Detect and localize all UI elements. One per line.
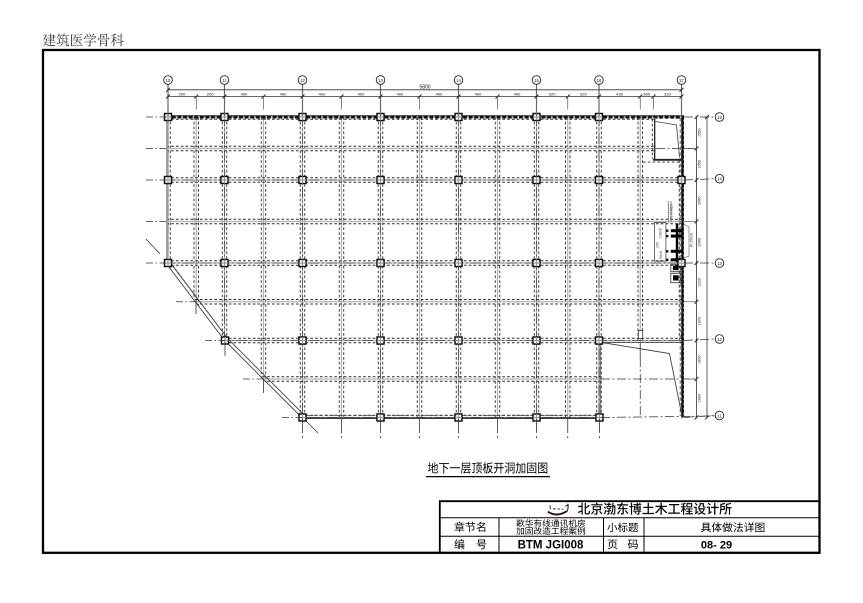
svg-text:15: 15	[717, 115, 722, 120]
svg-text:320: 320	[549, 91, 556, 96]
svg-text:400: 400	[436, 91, 443, 96]
svg-text:11: 11	[717, 414, 722, 419]
svg-text:1900: 1900	[698, 356, 702, 364]
svg-text:400: 400	[514, 91, 521, 96]
svg-text:15: 15	[534, 78, 539, 83]
svg-text:13: 13	[717, 261, 722, 266]
svg-text:320: 320	[664, 91, 671, 96]
svg-text:PL250x8: PL250x8	[690, 233, 694, 247]
svg-text:12: 12	[717, 337, 722, 342]
svg-text:L50x5: L50x5	[659, 228, 663, 238]
svg-text:200: 200	[207, 91, 214, 96]
svg-text:600: 600	[644, 91, 651, 96]
svg-text:400: 400	[319, 91, 326, 96]
svg-text:320: 320	[580, 91, 587, 96]
svg-text:13: 13	[378, 78, 383, 83]
svg-text:2060: 2060	[698, 197, 702, 205]
svg-text:14: 14	[456, 78, 461, 83]
svg-text:1920: 1920	[698, 278, 702, 286]
svg-text:250: 250	[656, 242, 660, 248]
svg-text:400: 400	[280, 91, 287, 96]
svg-text:14: 14	[717, 177, 722, 182]
svg-text:10: 10	[166, 78, 171, 83]
svg-text:12: 12	[300, 78, 305, 83]
svg-text:08- 29: 08- 29	[701, 540, 732, 552]
svg-text:1550: 1550	[698, 160, 702, 168]
svg-text:17: 17	[679, 78, 684, 83]
svg-text:2060: 2060	[698, 238, 702, 246]
svg-text:11: 11	[222, 78, 227, 83]
svg-text:200: 200	[179, 91, 186, 96]
svg-text:400: 400	[475, 91, 482, 96]
svg-text:400: 400	[241, 91, 248, 96]
svg-text:L50x5: L50x5	[659, 251, 663, 261]
svg-text:BTM JGI008: BTM JGI008	[518, 539, 584, 551]
svg-text:400: 400	[397, 91, 404, 96]
svg-text:1900: 1900	[698, 394, 702, 402]
svg-text:16: 16	[597, 78, 602, 83]
svg-text:PL-8 M16: PL-8 M16	[670, 204, 674, 220]
svg-text:1550: 1550	[698, 129, 702, 137]
svg-text:5800: 5800	[419, 84, 430, 90]
svg-text:430: 430	[616, 91, 623, 96]
svg-text:1920: 1920	[698, 317, 702, 325]
svg-text:400: 400	[358, 91, 365, 96]
